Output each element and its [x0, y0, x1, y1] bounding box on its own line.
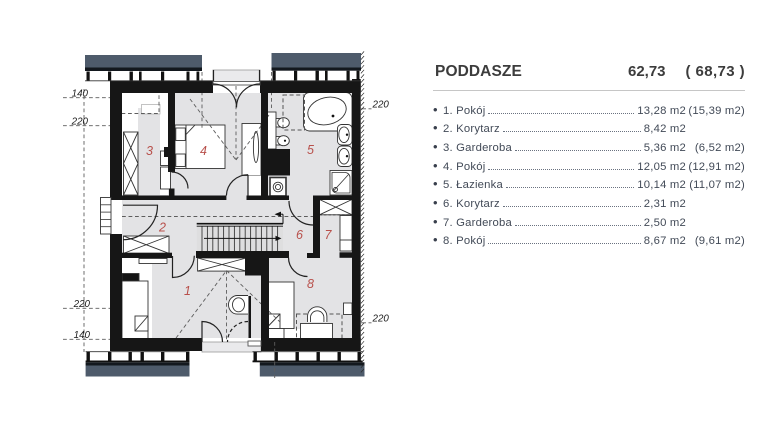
svg-text:220: 220 [372, 314, 390, 325]
svg-text:140: 140 [74, 330, 91, 341]
svg-text:7: 7 [325, 228, 333, 242]
svg-text:1: 1 [184, 284, 191, 298]
svg-text:6: 6 [296, 228, 303, 242]
svg-text:5: 5 [307, 143, 314, 157]
svg-text:2: 2 [158, 221, 166, 235]
svg-text:8: 8 [307, 277, 314, 291]
svg-text:220: 220 [372, 100, 390, 111]
svg-text:3: 3 [146, 144, 153, 158]
svg-text:4: 4 [200, 144, 207, 158]
svg-text:220: 220 [71, 117, 89, 128]
svg-text:220: 220 [73, 299, 91, 310]
svg-text:140: 140 [72, 89, 89, 100]
